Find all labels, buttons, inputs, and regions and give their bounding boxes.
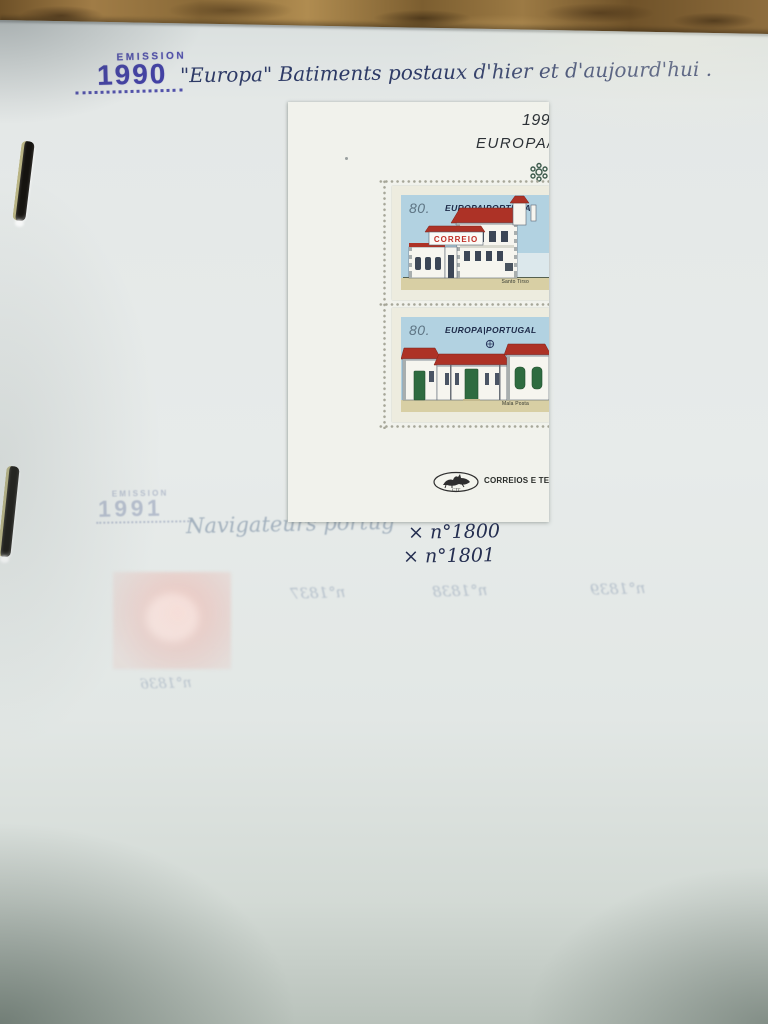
showthrough-number-1: n°1837 [290,583,346,603]
page-title-handwritten: "Europa" Batiments postaux d'hier et d'a… [180,57,712,87]
showthrough-emission-label: EMISSION [112,488,196,498]
stamp-caption-2: Mala Posta [502,401,529,407]
showthrough-emission-year: 1991 [98,496,196,521]
perforation-row-middle [378,302,549,307]
stamp-design-2: 80. EUROPA|PORTUGAL [401,317,549,412]
showthrough-red-stamp [113,572,231,669]
binder-punch-slot-bottom [0,466,20,558]
perforation-row-bottom [378,424,549,429]
binder-punch-slot-top [12,141,35,222]
post-office-building-illustration: CORREIO [401,195,549,290]
emission-year: 1990 [97,59,186,89]
showthrough-dotted-line [96,520,192,524]
emission-1990-rubber-stamp: EMISSION 1990 [74,50,185,94]
mail-post-station-illustration [401,317,549,412]
paper-speck [345,157,348,160]
ctt-initials: CTT [452,487,461,492]
publisher-name: CORREIOS E TELECO [484,476,549,485]
correio-sign: CORREIO [434,235,478,244]
sheet-europa-title: EUROPA/ [476,135,549,152]
emission-dotted-line [76,89,183,95]
ctt-rider-icon: CTT [432,471,480,498]
stamp-design-1: 80. EUROPA|PORTUGAL [401,195,549,290]
stamp-mala-posta: 80. EUROPA|PORTUGAL [392,308,549,422]
souvenir-sheet: 1990 EUROPA/ [288,102,549,522]
showthrough-number-3: n°1839 [590,579,646,599]
showthrough-number-bottom: n°1836 [140,675,192,693]
stamp-caption-1: Santo Tirso [502,279,530,285]
perforation-row-top [378,179,549,184]
photo-stamp-album-page: EMISSION 1991 Navigateurs portug n°1837 … [0,0,768,1024]
showthrough-emission-1991-stamp: EMISSION 1991 [96,488,197,524]
perforation-column-left [382,179,387,429]
album-page: EMISSION 1991 Navigateurs portug n°1837 … [0,0,768,1024]
catalog-number-1800: × n°1800 [408,520,500,544]
showthrough-number-2: n°1838 [432,581,488,601]
stamp-santo-tirso: 80. EUROPA|PORTUGAL [392,186,549,300]
catalog-number-1801: × n°1801 [403,544,495,568]
sheet-year: 1990 [522,112,549,130]
emission-label: EMISSION [116,50,184,63]
